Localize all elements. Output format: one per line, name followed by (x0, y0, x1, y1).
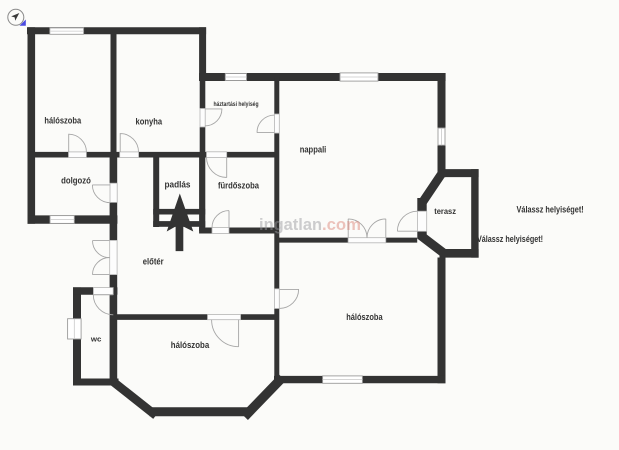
svg-text:előtér: előtér (143, 257, 164, 267)
svg-text:hálószoba: hálószoba (44, 116, 81, 126)
svg-text:terasz: terasz (434, 206, 456, 216)
svg-text:wc: wc (90, 335, 102, 344)
svg-text:ingatlan: ingatlan (259, 215, 322, 234)
svg-text:hálószoba: hálószoba (346, 312, 383, 322)
svg-text:hálószoba: hálószoba (171, 340, 210, 350)
svg-text:konyha: konyha (136, 116, 163, 126)
svg-text:háztartási helyiség: háztartási helyiség (213, 101, 258, 108)
svg-text:fürdőszoba: fürdőszoba (218, 181, 260, 191)
svg-text:dolgozó: dolgozó (61, 175, 91, 185)
svg-text:.com: .com (322, 215, 361, 234)
svg-text:Válassz helyiséget!: Válassz helyiséget! (477, 234, 543, 244)
svg-text:padlás: padlás (165, 179, 191, 189)
svg-text:nappali: nappali (300, 144, 327, 154)
svg-text:Válassz helyiséget!: Válassz helyiséget! (517, 205, 584, 215)
